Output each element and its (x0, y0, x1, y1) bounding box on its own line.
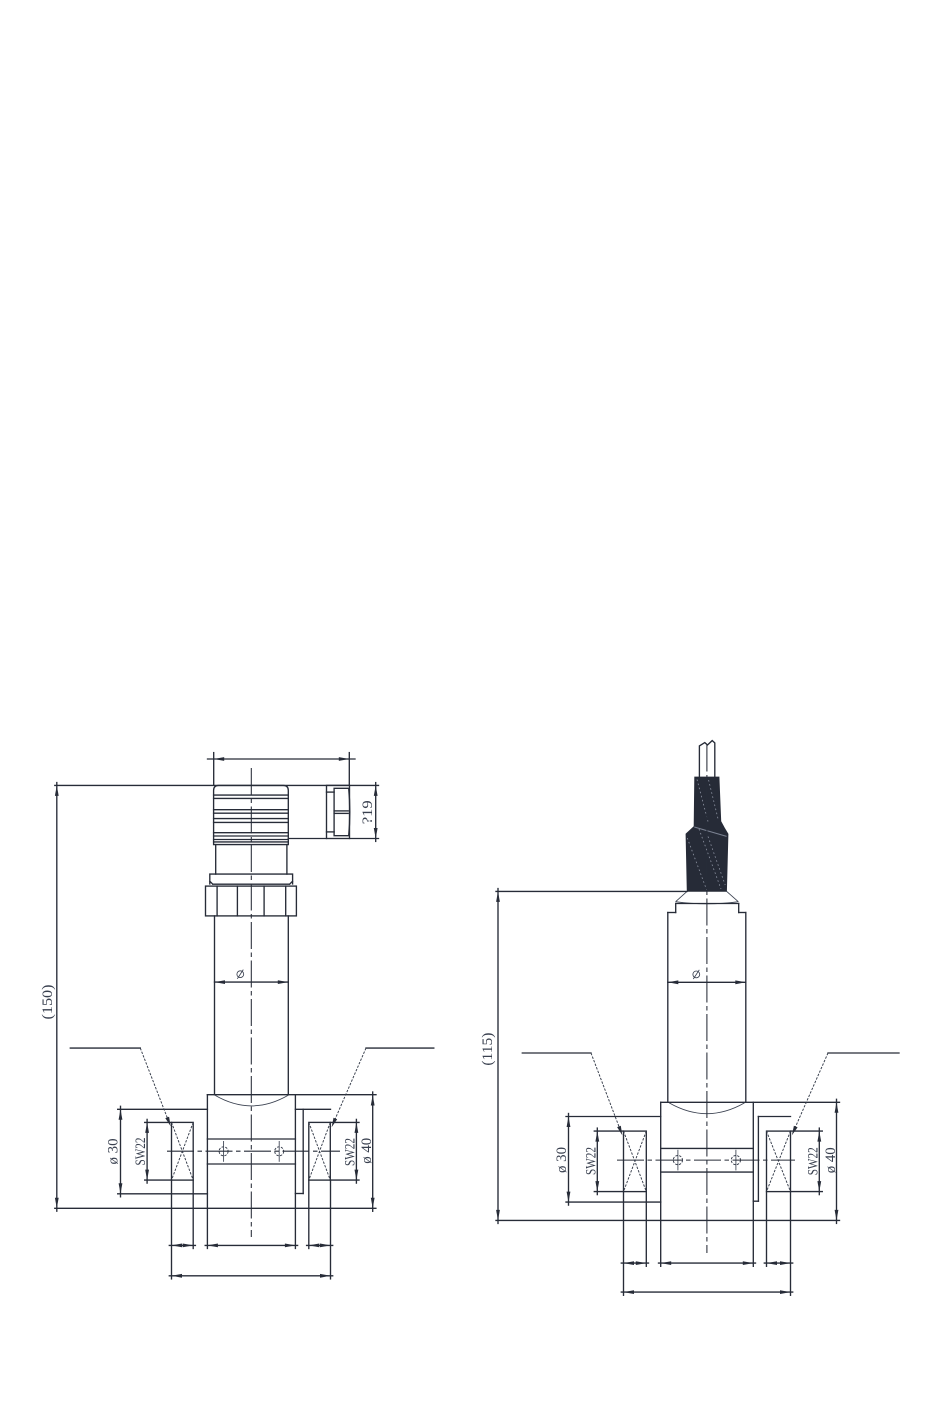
svg-text:SW22: SW22 (584, 1147, 600, 1175)
svg-text:ø 30: ø 30 (554, 1147, 570, 1173)
svg-text:SW22: SW22 (343, 1138, 359, 1166)
svg-text:ø 40: ø 40 (359, 1138, 375, 1164)
svg-text:?19: ?19 (360, 800, 376, 824)
svg-text:ø 40: ø 40 (823, 1147, 839, 1173)
svg-text:(150): (150) (40, 984, 56, 1019)
svg-text:ø 30: ø 30 (106, 1139, 122, 1165)
svg-text:SW22: SW22 (806, 1147, 822, 1175)
svg-text:SW22: SW22 (133, 1138, 149, 1166)
svg-text:(115): (115) (480, 1032, 496, 1065)
